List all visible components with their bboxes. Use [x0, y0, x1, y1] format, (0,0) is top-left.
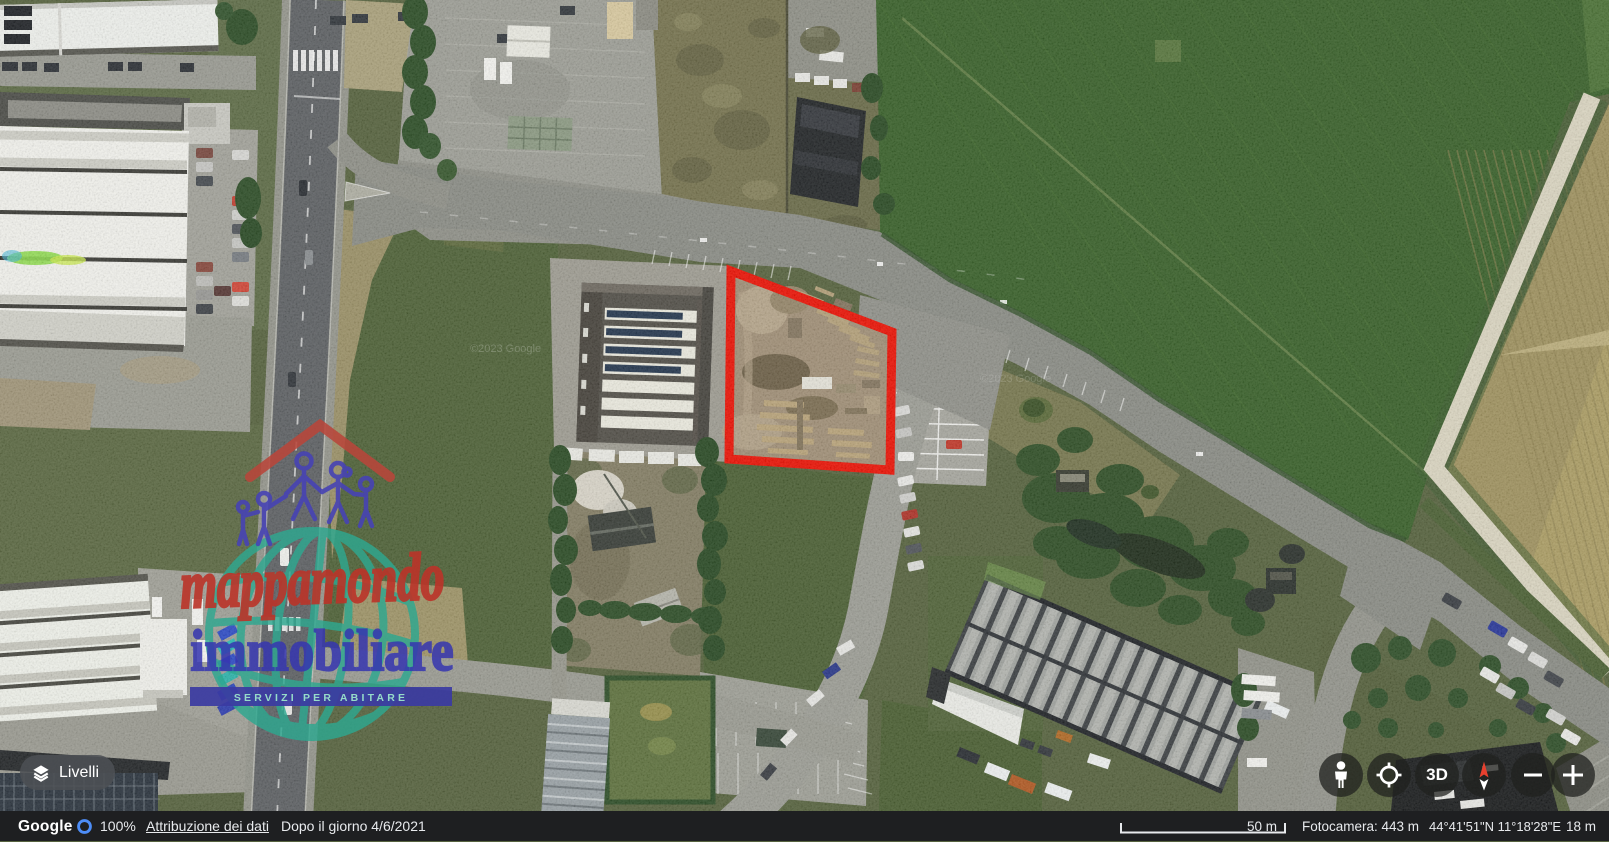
svg-text:mappamondo: mappamondo	[179, 539, 445, 622]
svg-text:SERVIZI PER ABITARE: SERVIZI PER ABITARE	[234, 692, 408, 704]
svg-text:immobiliare: immobiliare	[191, 618, 454, 683]
